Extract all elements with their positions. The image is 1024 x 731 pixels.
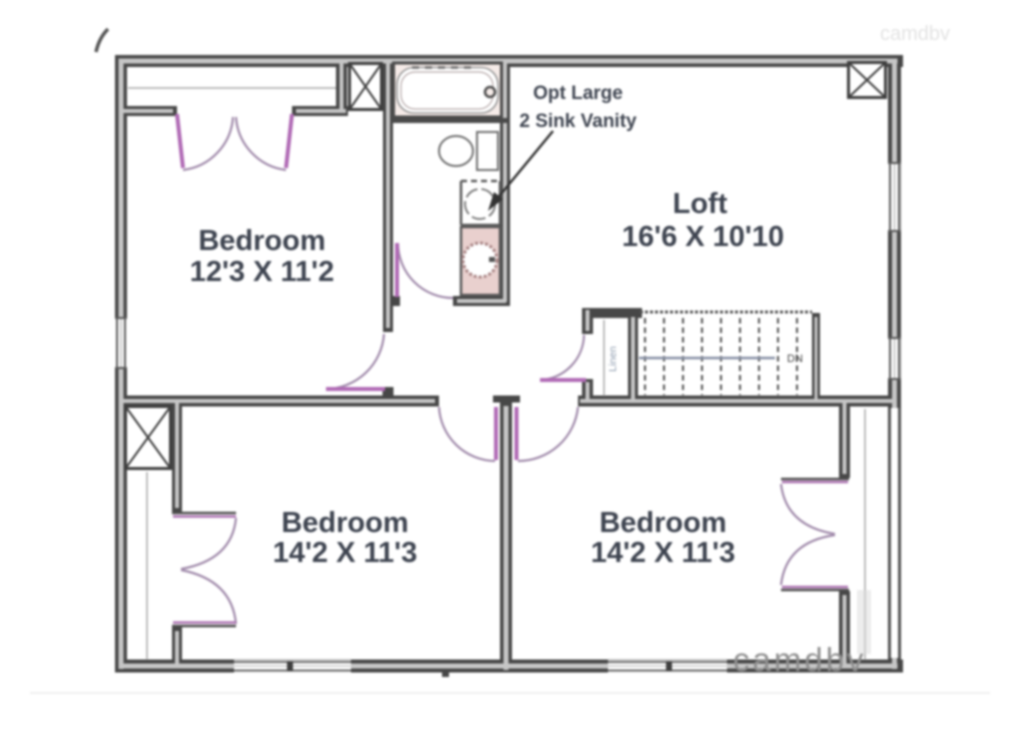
svg-text:Bedroom: Bedroom [599, 507, 726, 539]
svg-text:2 Sink Vanity: 2 Sink Vanity [519, 111, 637, 132]
svg-text:DN: DN [787, 353, 803, 365]
svg-text:Bedroom: Bedroom [198, 225, 325, 257]
svg-text:16'6 X 10'10: 16'6 X 10'10 [622, 221, 784, 253]
svg-text:camdbv: camdbv [733, 641, 867, 678]
svg-text:Bedroom: Bedroom [281, 507, 408, 539]
svg-text:14'2 X 11'3: 14'2 X 11'3 [273, 537, 417, 569]
svg-text:14'2 X 11'3: 14'2 X 11'3 [591, 537, 735, 569]
svg-text:12'3 X 11'2: 12'3 X 11'2 [190, 256, 334, 288]
svg-text:Linen: Linen [607, 346, 619, 372]
svg-text:Opt Large: Opt Large [533, 83, 623, 104]
svg-text:camdbv: camdbv [880, 23, 950, 45]
svg-text:Loft: Loft [673, 188, 728, 220]
